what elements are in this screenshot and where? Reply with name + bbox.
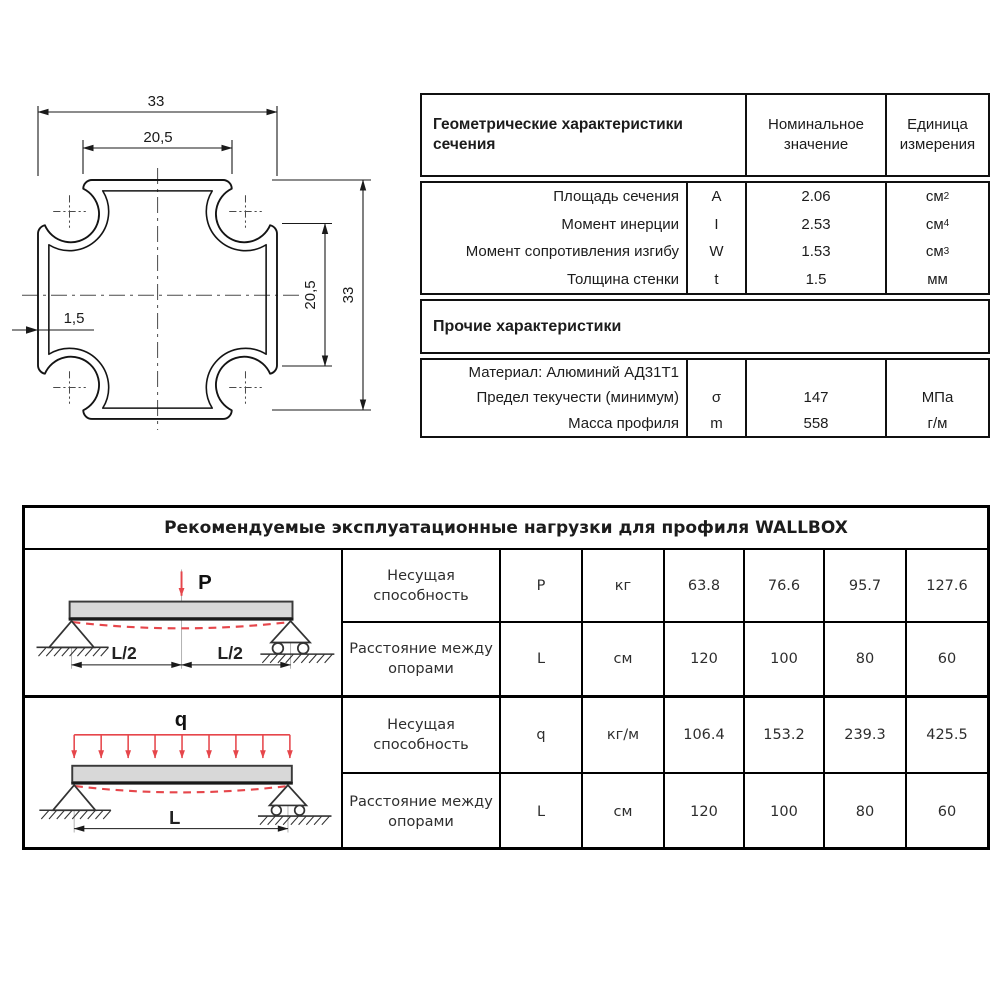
row-unit: мм: [887, 266, 988, 294]
point-load-diagram: P: [26, 550, 340, 696]
row-symbol: t: [688, 266, 747, 294]
load-symbol: L: [501, 774, 583, 849]
load-symbol: q: [501, 698, 583, 774]
geometry-header-unit: Единица измерения: [887, 95, 988, 175]
load-value: 120: [665, 623, 745, 698]
ground-hatching: [37, 647, 335, 663]
row-label: Материал: Алюминий АД31Т1: [422, 360, 688, 385]
row-label: Масса профиля: [422, 411, 688, 436]
dim-text-wall: 1,5: [64, 310, 85, 327]
load-unit: см: [583, 774, 665, 849]
geometry-material-rows: Материал: Алюминий АД31Т1 Предел текучес…: [420, 358, 990, 438]
row-value: 1.53: [747, 238, 887, 266]
row-unit: г/м: [887, 411, 988, 436]
row-symbol: m: [688, 411, 747, 436]
dim-text-overall-height: 33: [340, 287, 357, 304]
dim-arm-width: 20,5: [83, 129, 232, 174]
row-symbol: A: [688, 183, 747, 211]
load-value: 76.6: [745, 550, 825, 623]
other-characteristics-title: Прочие характеристики: [422, 318, 621, 336]
geometry-data-rows: Площадь сечения A 2.06 см2 Момент инерци…: [420, 181, 990, 295]
deflection-curve: [75, 786, 287, 792]
row-value: [747, 360, 887, 385]
point-load-diagram-cell: P: [25, 550, 343, 698]
load-value: 80: [825, 623, 907, 698]
row-unit: [887, 360, 988, 385]
load-unit: см: [583, 623, 665, 698]
row-value: 1.5: [747, 266, 887, 294]
force-label: P: [198, 570, 212, 593]
row-unit: см3: [887, 238, 988, 266]
load-value: 120: [665, 774, 745, 849]
row-value: 558: [747, 411, 887, 436]
row-unit: см2: [887, 183, 988, 211]
loads-table-grid: P: [25, 550, 987, 849]
force-label: q: [175, 709, 187, 731]
load-unit: кг/м: [583, 698, 665, 774]
datasheet-page: 33 20,5 20,5 33 1,5: [0, 0, 1000, 1000]
loads-table-title: Рекомендуемые эксплуатационные нагрузки …: [25, 508, 987, 550]
geometry-table-header: Геометрические характеристики сечения Но…: [420, 93, 990, 177]
span-right-label: L/2: [218, 643, 244, 663]
profile-drawing: 33 20,5 20,5 33 1,5: [10, 80, 395, 445]
span-left-label: L/2: [111, 643, 137, 663]
geometry-table: Геометрические характеристики сечения Но…: [420, 93, 990, 438]
pinned-support: [49, 621, 94, 647]
geometry-other-header: Прочие характеристики: [420, 299, 990, 354]
span-label: L: [169, 806, 180, 827]
pinned-support: [53, 785, 96, 810]
load-label: Несущая способность: [343, 550, 501, 623]
load-value: 100: [745, 623, 825, 698]
dim-text-overall-width: 33: [148, 93, 165, 110]
row-value: 2.53: [747, 211, 887, 239]
row-label: Момент инерции: [422, 211, 688, 239]
dim-text-arm-height: 20,5: [302, 280, 319, 309]
dim-wall-thickness: 1,5: [12, 310, 94, 334]
load-value: 80: [825, 774, 907, 849]
loads-table: Рекомендуемые эксплуатационные нагрузки …: [22, 505, 990, 850]
distributed-load-diagram-cell: q: [25, 698, 343, 849]
load-value: 60: [907, 774, 987, 849]
row-label: Момент сопротивления изгибу: [422, 238, 688, 266]
row-value: 147: [747, 385, 887, 410]
row-unit: см4: [887, 211, 988, 239]
row-label: Толщина стенки: [422, 266, 688, 294]
load-value: 95.7: [825, 550, 907, 623]
row-symbol: I: [688, 211, 747, 239]
load-value: 153.2: [745, 698, 825, 774]
geometry-header-nominal: Номинальное значение: [747, 95, 887, 175]
load-unit: кг: [583, 550, 665, 623]
load-symbol: P: [501, 550, 583, 623]
row-label: Предел текучести (минимум): [422, 385, 688, 410]
beam: [70, 601, 293, 618]
load-symbol: L: [501, 623, 583, 698]
distributed-load-diagram: q: [26, 700, 340, 848]
row-unit: МПа: [887, 385, 988, 410]
beam: [72, 765, 292, 781]
load-value: 425.5: [907, 698, 987, 774]
dim-text-arm-width: 20,5: [143, 129, 172, 146]
load-label: Несущая способность: [343, 698, 501, 774]
load-label: Расстояние между опорами: [343, 774, 501, 849]
load-value: 60: [907, 623, 987, 698]
load-value: 100: [745, 774, 825, 849]
row-symbol: W: [688, 238, 747, 266]
dim-arm-height: 20,5: [282, 224, 332, 367]
center-lines: [22, 168, 302, 430]
row-value: 2.06: [747, 183, 887, 211]
row-symbol: σ: [688, 385, 747, 410]
geometry-header-title: Геометрические характеристики сечения: [422, 95, 747, 175]
load-label: Расстояние между опорами: [343, 623, 501, 698]
load-value: 106.4: [665, 698, 745, 774]
load-value: 63.8: [665, 550, 745, 623]
distributed-load-arrows: [74, 734, 290, 757]
row-label: Площадь сечения: [422, 183, 688, 211]
load-value: 127.6: [907, 550, 987, 623]
load-value: 239.3: [825, 698, 907, 774]
row-symbol: [688, 360, 747, 385]
